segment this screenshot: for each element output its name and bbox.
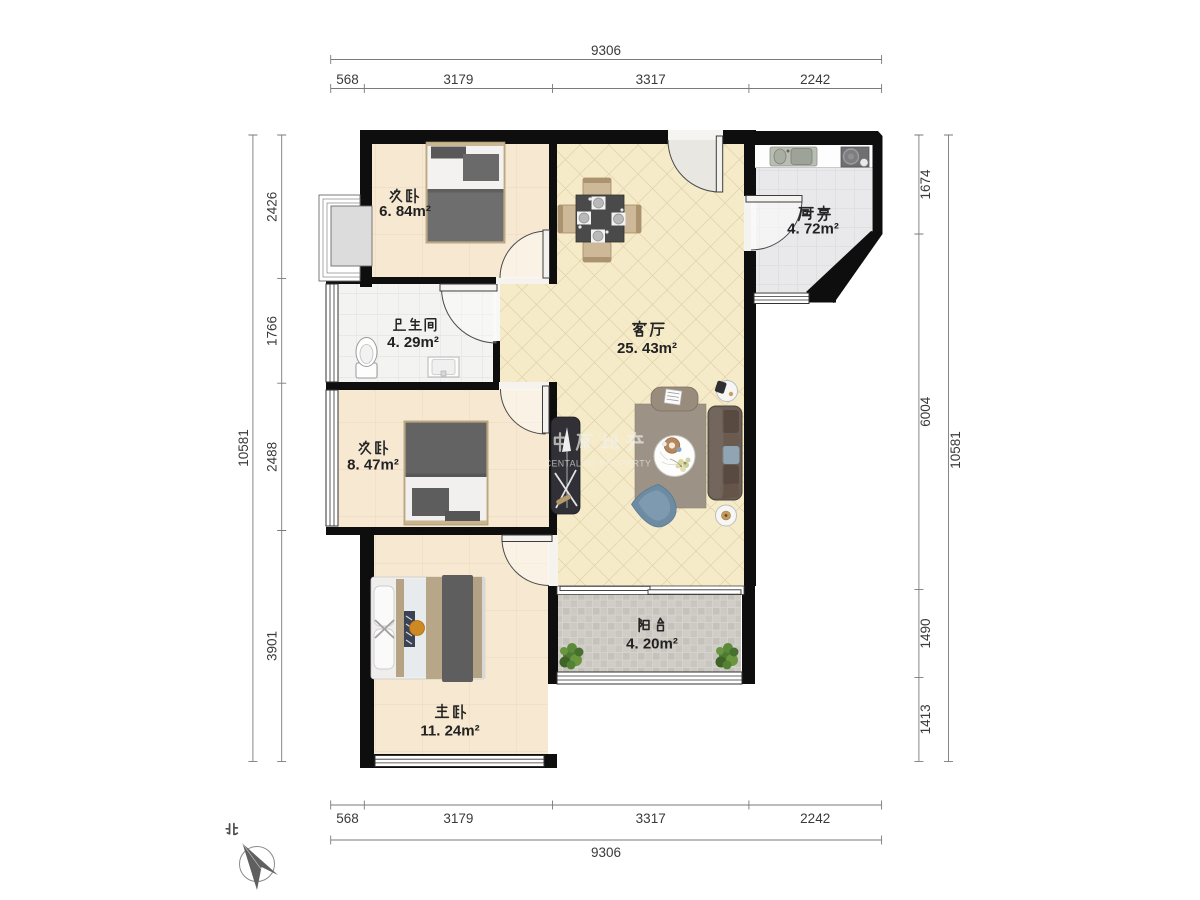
svg-text:25. 43m²: 25. 43m² [617,340,677,357]
svg-text:568: 568 [336,72,359,87]
svg-text:4. 29m²: 4. 29m² [387,334,439,351]
svg-text:3317: 3317 [636,72,666,87]
svg-text:9306: 9306 [591,43,621,58]
svg-text:4. 72m²: 4. 72m² [787,221,839,238]
svg-text:3179: 3179 [443,811,473,826]
svg-text:6004: 6004 [918,396,933,427]
svg-text:3179: 3179 [443,72,473,87]
svg-text:2242: 2242 [800,811,830,826]
svg-text:2488: 2488 [265,442,280,472]
svg-text:4. 20m²: 4. 20m² [626,636,678,653]
svg-text:568: 568 [336,811,359,826]
svg-text:3317: 3317 [636,811,666,826]
svg-text:3901: 3901 [265,631,280,661]
svg-text:CENTALINE PROPERTY: CENTALINE PROPERTY [545,459,652,469]
svg-text:1674: 1674 [918,169,933,200]
svg-text:2426: 2426 [265,192,280,222]
svg-text:10581: 10581 [948,431,963,469]
svg-text:8. 47m²: 8. 47m² [347,457,399,474]
svg-text:11. 24m²: 11. 24m² [420,723,479,740]
svg-text:10581: 10581 [236,429,251,467]
svg-text:2242: 2242 [800,72,830,87]
svg-text:1413: 1413 [918,704,933,734]
svg-text:6. 84m²: 6. 84m² [379,203,431,220]
svg-text:9306: 9306 [591,845,621,860]
svg-text:1490: 1490 [918,618,933,648]
svg-text:1766: 1766 [265,316,280,346]
